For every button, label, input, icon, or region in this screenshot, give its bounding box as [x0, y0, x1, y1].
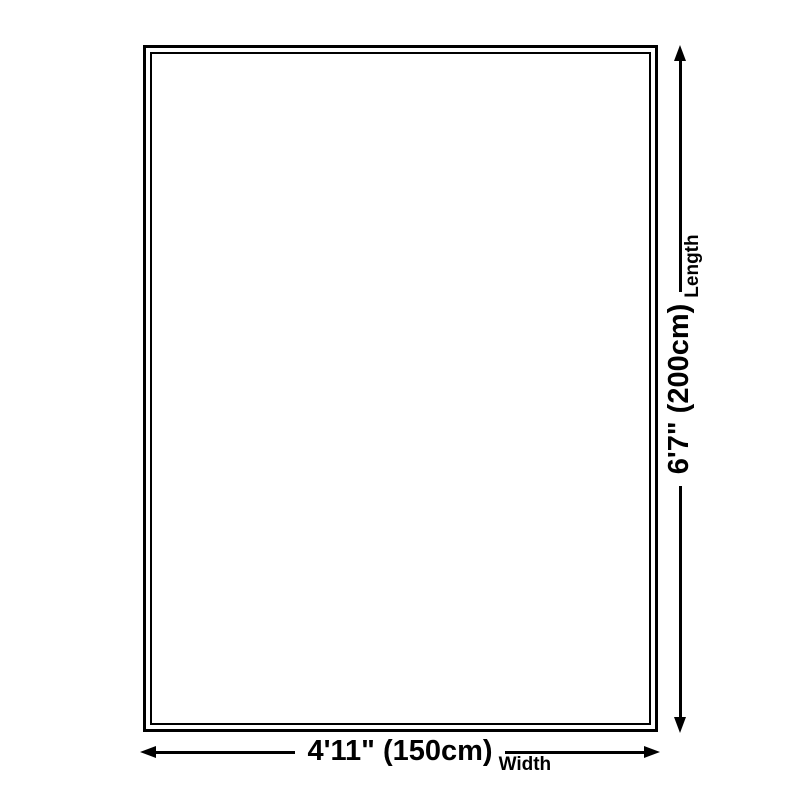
length-value-group: 6'7" (200cm) Length — [664, 304, 696, 475]
width-value: 4'11" (150cm) — [307, 736, 492, 768]
length-value: 6'7" (200cm) — [664, 304, 696, 475]
rug-inner-border — [150, 52, 651, 725]
rug-size-diagram: 6'7" (200cm) Length 4'11" (150cm) Width — [0, 0, 800, 800]
length-dimension: 6'7" (200cm) Length — [650, 45, 710, 733]
rug-outline — [143, 45, 658, 732]
arrow-left-icon — [140, 746, 156, 758]
length-arrow-lower-segment — [674, 486, 686, 733]
arrow-right-icon — [644, 746, 660, 758]
arrow-up-icon — [674, 45, 686, 61]
width-dimension: 4'11" (150cm) Width — [140, 722, 660, 782]
width-value-group: 4'11" (150cm) Width — [307, 736, 492, 768]
length-label: Length — [683, 234, 702, 297]
width-arrow-left-segment — [140, 746, 295, 758]
dimension-line — [156, 751, 295, 754]
dimension-line — [679, 486, 682, 717]
width-label: Width — [499, 755, 552, 774]
arrow-down-icon — [674, 717, 686, 733]
